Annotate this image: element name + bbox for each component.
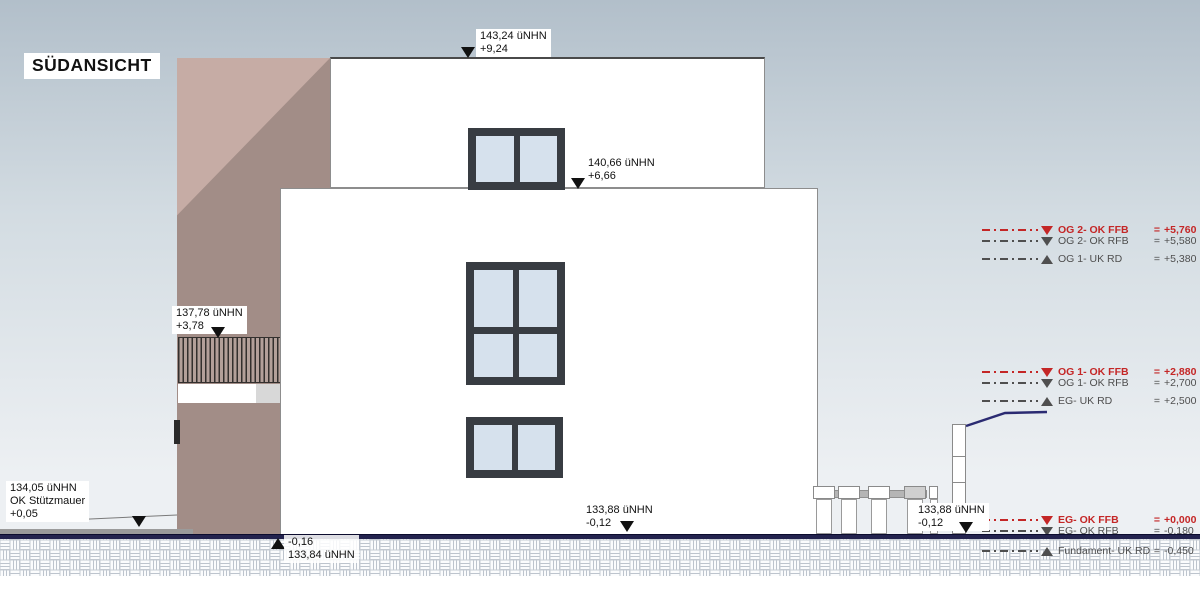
level-annotation-og1-rfb: OG 1- OK RFB = +2,700	[982, 377, 1196, 389]
level-label: OG 1- OK RFB	[1058, 377, 1150, 389]
wall-pillar-cap	[904, 486, 926, 499]
level-label: Fundament- UK RD	[1058, 545, 1150, 557]
window-pane	[474, 270, 513, 327]
level-marker-down-icon	[959, 522, 973, 533]
marker-elevation-value: 143,24 üNHN	[480, 30, 547, 43]
dash-dot-leader	[982, 229, 1038, 231]
level-marker-up-icon	[1041, 397, 1053, 406]
marker-relative-value: +0,05	[10, 508, 85, 521]
level-annotation-og1-ukrd: OG 1- UK RD = +5,380	[982, 253, 1196, 265]
wall-pillar-cap	[838, 486, 860, 499]
window-pane	[519, 270, 558, 327]
elevation-drawing: SÜDANSICHT 143,24 üNHN +9,24 140,66 üNHN…	[0, 0, 1200, 600]
balcony-slab-shade	[256, 384, 280, 403]
marker-label: OK Stützmauer	[10, 495, 85, 508]
marker-elevation-value: 133,84 üNHN	[288, 549, 355, 562]
level-label: EG- UK RD	[1058, 395, 1150, 407]
level-value: -0,450	[1164, 545, 1194, 557]
wall-pillar	[816, 499, 832, 534]
level-marker-down-icon	[132, 516, 146, 527]
wall-pillar	[841, 499, 857, 534]
level-value: +2,500	[1164, 395, 1196, 407]
level-marker-down-icon	[211, 327, 225, 338]
marker-relative-value: +3,78	[176, 320, 243, 333]
elevation-marker-og: 140,66 üNHN +6,66	[584, 156, 659, 184]
elevation-marker-roof: 143,24 üNHN +9,24	[476, 29, 551, 57]
window-bottom	[466, 417, 563, 478]
equals-sign: =	[1150, 235, 1164, 247]
window-middle	[466, 262, 565, 385]
marker-elevation-value: 133,88 üNHN	[918, 504, 985, 517]
marker-elevation-value: 134,05 üNHN	[10, 482, 85, 495]
dash-dot-leader	[982, 371, 1038, 373]
level-marker-down-icon	[461, 47, 475, 58]
elevation-marker-retaining-wall: 134,05 üNHN OK Stützmauer +0,05	[6, 481, 89, 522]
marker-relative-value: +6,66	[588, 170, 655, 183]
wall-pillar-cap	[929, 486, 938, 499]
level-label: OG 2- OK RFB	[1058, 235, 1150, 247]
marker-relative-value: -0,12	[918, 517, 985, 530]
level-label: OG 1- UK RD	[1058, 253, 1150, 265]
level-marker-up-icon	[1041, 255, 1053, 264]
drawing-title: SÜDANSICHT	[24, 53, 160, 79]
elevation-marker-ground-right: 133,88 üNHN -0,12	[914, 503, 989, 531]
dash-dot-leader	[982, 530, 1038, 532]
level-annotation-fundament-ukrd: Fundament- UK RD = -0,450	[982, 545, 1194, 557]
level-marker-up-icon	[271, 538, 285, 549]
window-pane	[474, 425, 512, 470]
balcony-railing	[178, 337, 280, 383]
level-value: +5,580	[1164, 235, 1196, 247]
wall-pillar	[871, 499, 887, 534]
level-marker-down-icon	[571, 178, 585, 189]
window-pane	[474, 334, 513, 377]
level-marker-down-icon	[1041, 368, 1053, 377]
window-top	[468, 128, 565, 190]
window-pane	[518, 425, 556, 470]
dash-dot-leader	[982, 400, 1038, 402]
marker-elevation-value: 140,66 üNHN	[588, 157, 655, 170]
dash-dot-leader	[982, 550, 1038, 552]
window-pane	[476, 136, 514, 182]
marker-relative-value: +9,24	[480, 43, 547, 56]
level-marker-down-icon	[1041, 379, 1053, 388]
level-marker-down-icon	[1041, 226, 1053, 235]
marker-elevation-value: 137,78 üNHN	[176, 307, 243, 320]
equals-sign: =	[1150, 545, 1164, 557]
elevation-marker-below-ground: -0,16 133,84 üNHN	[284, 535, 359, 563]
dash-dot-leader	[982, 519, 1038, 521]
window-pane	[520, 136, 558, 182]
column-joint	[953, 482, 965, 483]
equals-sign: =	[1150, 253, 1164, 265]
level-value: +5,380	[1164, 253, 1196, 265]
marker-relative-value: -0,16	[288, 536, 355, 549]
dash-dot-leader	[982, 258, 1038, 260]
terrain-line	[966, 412, 1047, 426]
wall-pillar-cap	[813, 486, 835, 499]
dash-dot-leader	[982, 382, 1038, 384]
dash-dot-leader	[982, 240, 1038, 242]
window-pane	[519, 334, 558, 377]
wall-fixture	[174, 420, 180, 444]
level-marker-up-icon	[1041, 547, 1053, 556]
level-marker-down-icon	[1041, 516, 1053, 525]
wall-pillar-cap	[868, 486, 890, 499]
equals-sign: =	[1150, 377, 1164, 389]
level-annotation-eg-ukrd: EG- UK RD = +2,500	[982, 395, 1196, 407]
elevation-marker-balcony: 137,78 üNHN +3,78	[172, 306, 247, 334]
level-marker-down-icon	[1041, 237, 1053, 246]
balcony-slab	[178, 384, 280, 403]
level-value: +2,700	[1164, 377, 1196, 389]
column-joint	[953, 456, 965, 457]
level-marker-down-icon	[620, 521, 634, 532]
level-annotation-og2-rfb: OG 2- OK RFB = +5,580	[982, 235, 1196, 247]
ground-line	[0, 534, 1200, 539]
marker-elevation-value: 133,88 üNHN	[586, 504, 653, 517]
equals-sign: =	[1150, 395, 1164, 407]
